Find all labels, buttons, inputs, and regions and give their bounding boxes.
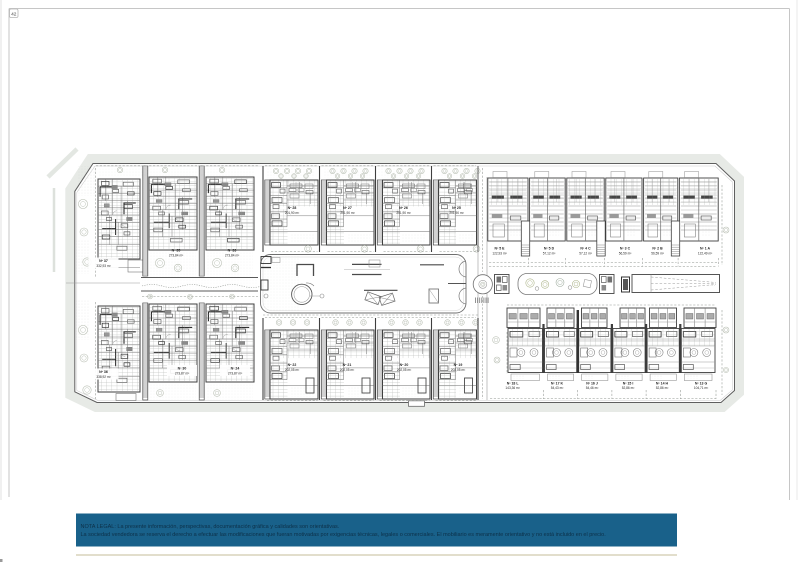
svg-text:202,05 m²: 202,05 m²: [340, 368, 354, 372]
svg-text:122,49 m²: 122,49 m²: [698, 251, 712, 255]
svg-text:202,05 m²: 202,05 m²: [397, 368, 411, 372]
svg-text:57,12 m²: 57,12 m²: [579, 251, 592, 255]
svg-text:Nº 26: Nº 26: [399, 206, 408, 210]
svg-text:273,84 m²: 273,84 m²: [169, 253, 183, 257]
svg-text:54,43 m²: 54,43 m²: [551, 386, 564, 390]
svg-text:Nº 1 A: Nº 1 A: [700, 247, 711, 251]
svg-text:Nº 16 J: Nº 16 J: [586, 381, 598, 385]
svg-text:Nº 30: Nº 30: [178, 367, 187, 371]
svg-text:Nº 15 I: Nº 15 I: [623, 381, 634, 385]
svg-text:338,92 m²: 338,92 m²: [96, 375, 110, 379]
svg-text:202,05 m²: 202,05 m²: [285, 368, 299, 372]
svg-text:273,84 m²: 273,84 m²: [225, 253, 239, 257]
svg-text:57,12 m²: 57,12 m²: [543, 251, 556, 255]
svg-text:332,93 m²: 332,93 m²: [96, 264, 110, 268]
svg-text:122,93 m²: 122,93 m²: [492, 251, 506, 255]
svg-text:Nº 35: Nº 35: [172, 249, 181, 253]
svg-text:Nº 20: Nº 20: [400, 363, 409, 367]
svg-text:Nº 24: Nº 24: [231, 367, 240, 371]
svg-text:Nº 37: Nº 37: [99, 259, 108, 263]
svg-text:Nº 36: Nº 36: [99, 370, 108, 374]
svg-text:Nº 4 C: Nº 4 C: [580, 247, 591, 251]
svg-text:...: ...: [710, 284, 716, 287]
svg-text:Nº 28: Nº 28: [288, 206, 297, 210]
svg-text:201,90 m²: 201,90 m²: [285, 211, 299, 215]
svg-text:Nº 14 H: Nº 14 H: [656, 381, 669, 385]
svg-text:143,36 m²: 143,36 m²: [505, 386, 519, 390]
svg-text:Nº 2 B: Nº 2 B: [652, 247, 663, 251]
svg-text:56,59 m²: 56,59 m²: [619, 251, 632, 255]
svg-text:273,87 m²: 273,87 m²: [228, 371, 242, 375]
svg-text:104,71 m²: 104,71 m²: [694, 386, 708, 390]
svg-text:Nº 3 C: Nº 3 C: [620, 247, 631, 251]
svg-text:52,86 m²: 52,86 m²: [622, 386, 635, 390]
svg-text:42: 42: [11, 11, 17, 17]
svg-text:52,86 m²: 52,86 m²: [656, 386, 669, 390]
svg-text:201,90 m²: 201,90 m²: [449, 211, 463, 215]
svg-text:Nº 27: Nº 27: [343, 206, 352, 210]
svg-text:201,90 m²: 201,90 m²: [396, 211, 410, 215]
svg-text:NOTA LEGAL: La presente infor: NOTA LEGAL: La presente información, per…: [81, 524, 340, 530]
svg-text:Nº 18 L: Nº 18 L: [507, 381, 520, 385]
svg-text:273,87 m²: 273,87 m²: [175, 371, 189, 375]
svg-text:202,05 m²: 202,05 m²: [451, 368, 465, 372]
svg-text:Nº 5 D: Nº 5 D: [544, 247, 555, 251]
svg-text:201,90 m²: 201,90 m²: [340, 211, 354, 215]
svg-text:56,59 m²: 56,59 m²: [651, 251, 664, 255]
svg-text:Nº 25: Nº 25: [452, 206, 461, 210]
svg-text:Nº 5 E: Nº 5 E: [494, 247, 505, 251]
svg-text:Nº 22: Nº 22: [288, 363, 297, 367]
svg-text:Nº 13 G: Nº 13 G: [695, 381, 708, 385]
svg-text:Nº 19: Nº 19: [454, 363, 463, 367]
svg-text:Nº 17 K: Nº 17 K: [551, 381, 564, 385]
svg-text:Nº 21: Nº 21: [343, 363, 352, 367]
svg-text:La sociedad vendedora se reser: La sociedad vendedora se reserva el dere…: [81, 532, 607, 538]
svg-text:Nº 33: Nº 33: [228, 249, 237, 253]
svg-text:54,46 m²: 54,46 m²: [586, 386, 599, 390]
